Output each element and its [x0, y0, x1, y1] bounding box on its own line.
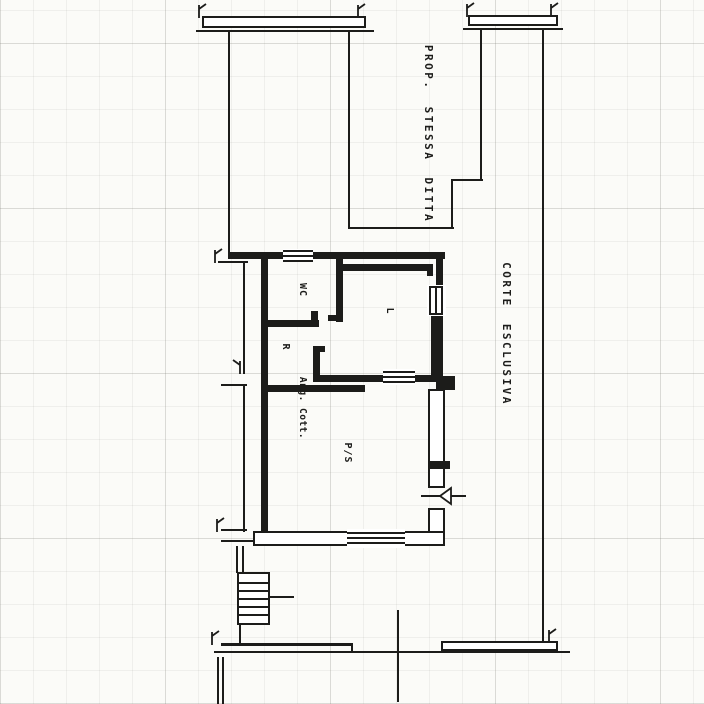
boundary-line-right — [542, 28, 544, 645]
window-bottom-line — [347, 542, 405, 544]
wall-top-inner — [343, 264, 433, 271]
window-top-line — [283, 250, 313, 252]
neighbor-parcel-line-step — [451, 179, 483, 181]
wall-right-mid — [431, 316, 443, 377]
window-top-line — [283, 260, 313, 262]
survey-tick-icon — [196, 2, 208, 18]
room-label-l: L — [383, 304, 395, 318]
bottom-boundary-wall — [221, 643, 353, 646]
stair-tread — [237, 614, 270, 616]
kitchenette-label: Ang. Cott. — [296, 378, 308, 438]
window-mid-line — [383, 381, 415, 383]
neighbor-parcel-line-bottom — [348, 227, 454, 229]
wall-left — [261, 252, 268, 535]
boundary-wall-bar-top-right — [468, 15, 558, 26]
survey-tick-icon — [212, 247, 224, 263]
window-bottom-line — [347, 532, 405, 534]
main-room-label: P/S — [341, 438, 353, 468]
courtyard-strip-line-upper — [243, 262, 245, 374]
survey-tick-icon — [464, 1, 476, 17]
stair-tread-extension — [269, 596, 294, 598]
wall-right-pilaster — [436, 376, 455, 390]
stair-tail-line — [239, 624, 241, 644]
boundary-line-left — [228, 31, 230, 253]
courtyard-label: CORTE ESCLUSIVA — [500, 269, 514, 399]
door-jamb-wc — [311, 311, 318, 321]
window-top-line — [283, 255, 313, 257]
wall-wc-right — [336, 259, 343, 322]
stair-tread — [237, 606, 270, 608]
room-label-r: R — [279, 340, 291, 354]
room-label-wc: WC — [296, 278, 308, 302]
window-right-line — [435, 286, 437, 315]
survey-tick-icon — [209, 629, 221, 645]
window-mid-line — [383, 376, 415, 378]
survey-tick-icon — [548, 1, 560, 17]
window-mid-line — [383, 371, 415, 373]
stair-tread — [237, 598, 270, 600]
window-bottom-line — [347, 537, 405, 539]
bottom-fence-line — [397, 610, 399, 702]
bottom-left-double-line — [217, 657, 219, 704]
boundary-underline-top-right — [463, 28, 563, 30]
window-right-line — [441, 286, 443, 315]
neighbor-parcel-line-left — [348, 30, 350, 229]
window-right-line — [429, 286, 431, 315]
boundary-wall-bar-top-left — [202, 16, 366, 28]
wall-r-right — [313, 346, 320, 377]
survey-tick-icon — [546, 627, 558, 643]
floor-plan-canvas: PROP. STESSA DITTA CORTE ESCLUSIVA WC R … — [0, 0, 704, 704]
survey-tick-icon — [355, 2, 367, 18]
survey-tick-icon — [231, 358, 243, 374]
wall-ps-top — [261, 385, 365, 392]
wall-right-stub — [428, 461, 450, 469]
neighbor-parcel-line-right-lower — [451, 179, 453, 229]
bottom-boundary-line — [214, 651, 570, 653]
wall-bottom-left-extension — [221, 540, 255, 542]
wall-right-lower-a — [428, 389, 445, 488]
stair-neck-line — [236, 546, 238, 573]
wall-mid-upper-a — [313, 375, 386, 382]
entrance-arrow-icon — [437, 486, 453, 506]
stair-tread — [237, 582, 270, 584]
wall-wc-bottom — [261, 320, 319, 327]
neighbor-property-label: PROP. STESSA DITTA — [422, 59, 436, 209]
stair-neck-line — [242, 546, 244, 573]
bottom-left-double-line — [222, 657, 224, 704]
wall-top-inner-hook — [427, 269, 433, 276]
bottom-right-wall-bar — [441, 641, 558, 651]
wall-right-upper — [436, 252, 443, 288]
wall-wc-right-hook — [328, 315, 337, 321]
survey-tick-icon — [214, 516, 226, 532]
courtyard-strip-line-lower — [243, 385, 245, 532]
neighbor-parcel-line-right-upper — [480, 30, 482, 181]
stair-tread — [237, 590, 270, 592]
